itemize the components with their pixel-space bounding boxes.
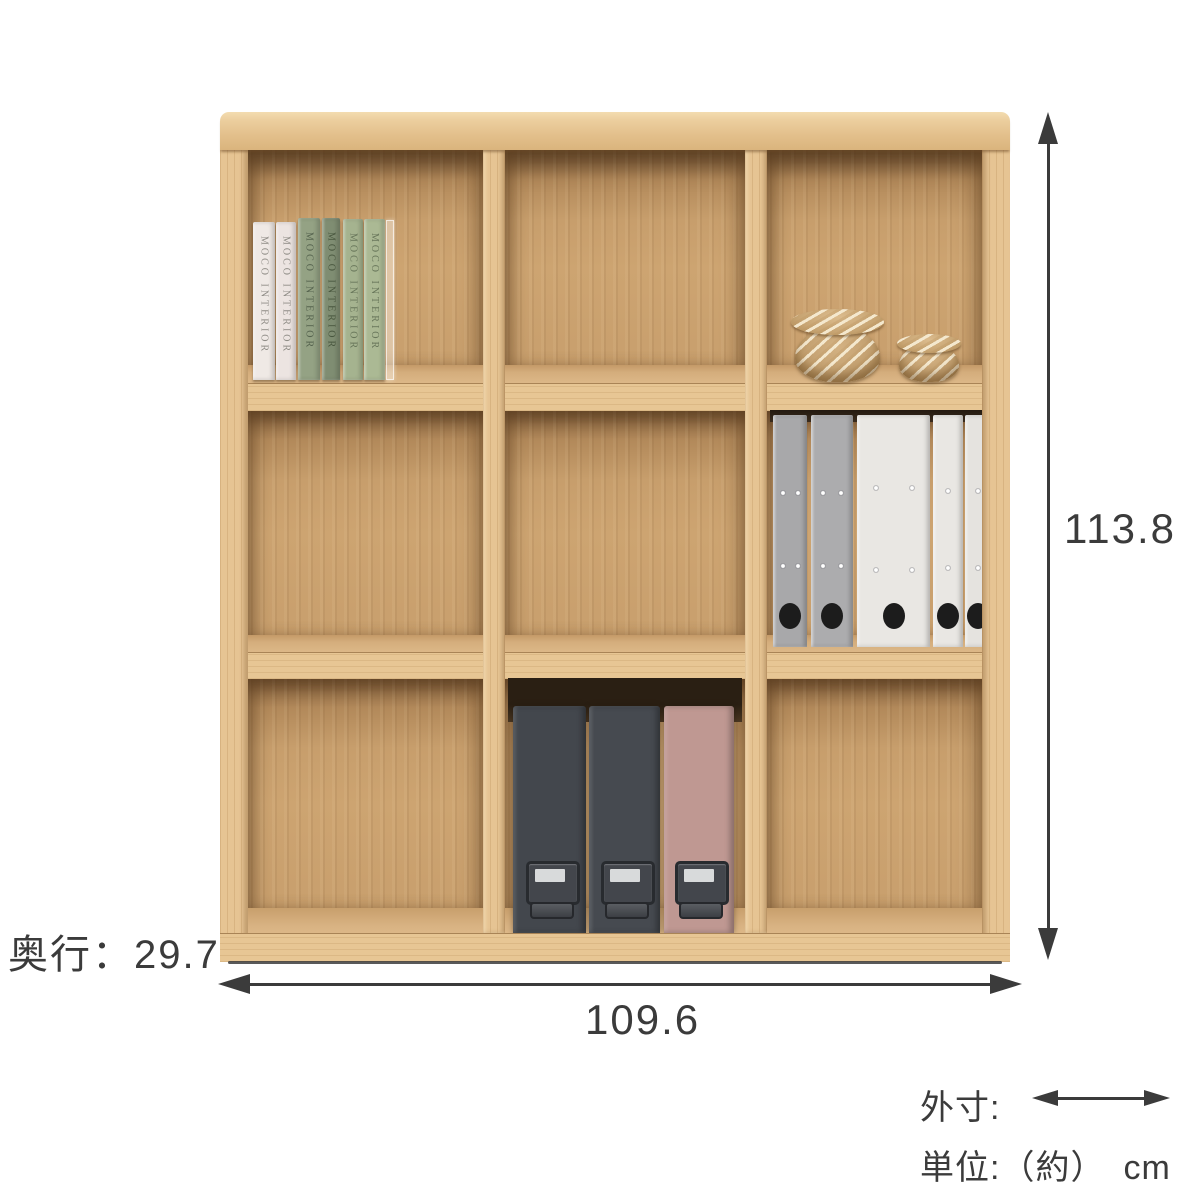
label-holder [675, 861, 729, 905]
height-dimension-label: 113.8 [1064, 505, 1176, 553]
binder-rivet [945, 565, 951, 571]
woven-basket-small-lid [897, 334, 961, 353]
width-dimension-label: 109.6 [585, 996, 700, 1044]
woven-basket-large-lid [791, 309, 884, 335]
binder-rivet [780, 490, 786, 496]
binder [811, 415, 853, 647]
binder-rivet [873, 485, 879, 491]
binder [773, 415, 807, 647]
label-holder [601, 861, 655, 905]
binder [857, 415, 930, 647]
double-arrow-icon [1032, 1088, 1170, 1108]
double-arrow-left-head [1032, 1090, 1058, 1106]
book-spine-text: MOCO INTERIOR [326, 232, 337, 380]
binder-rivet [820, 563, 826, 569]
shelf-cell-r3c1 [248, 678, 483, 908]
pull-handle [679, 902, 723, 919]
book-spine: MOCO INTERIOR [253, 222, 275, 380]
shelf-cell-r2c1 [248, 410, 483, 635]
book-spine-text: MOCO INTERIOR [304, 232, 315, 380]
cabinet-divider-2 [745, 150, 767, 933]
legend-unit-label: 単位:（約） cm [920, 1140, 1171, 1189]
arrow-up-icon [1038, 112, 1058, 144]
height-dimension-line [1047, 118, 1050, 954]
label-holder [526, 861, 580, 905]
cabinet-divider-1 [483, 150, 505, 933]
book-spine-text: MOCO INTERIOR [348, 233, 359, 380]
binder-rivet [795, 490, 801, 496]
cabinet-left-wall [220, 150, 248, 961]
cabinet-bottom-rail [220, 933, 1010, 962]
cabinet-right-wall [982, 150, 1010, 961]
book-spine: MOCO INTERIOR [298, 218, 320, 380]
book-spine-text: MOCO INTERIOR [259, 236, 270, 380]
book-spine-text: MOCO INTERIOR [369, 233, 380, 380]
file-box [664, 706, 734, 933]
cabinet-top-panel [220, 112, 1010, 150]
arrow-down-icon [1038, 928, 1058, 960]
double-arrow-line [1052, 1097, 1150, 1100]
binder-rivet [795, 563, 801, 569]
width-dimension-line [230, 983, 1010, 986]
book-spine: MOCO INTERIOR [276, 222, 296, 380]
label-card [610, 869, 640, 882]
binder [933, 415, 963, 647]
woven-basket-large [795, 327, 880, 382]
shelf-board-1-face [248, 383, 982, 411]
legend-outer-dim-label: 外寸: [920, 1080, 1000, 1129]
shelf-cell-r1c3 [767, 150, 982, 365]
book-spine: MOCO INTERIOR [343, 219, 363, 380]
file-box [513, 706, 586, 933]
binder-rivet [975, 565, 981, 571]
binder-rivet [780, 563, 786, 569]
pull-handle [530, 902, 574, 919]
shelf-board-2-face [248, 652, 982, 679]
arrow-right-icon [990, 974, 1022, 994]
book-spine: MOCO INTERIOR [364, 219, 385, 380]
binder-rivet [873, 567, 879, 573]
acrylic-bookend [386, 220, 394, 380]
binder-rivet [838, 490, 844, 496]
label-card [684, 869, 714, 882]
depth-dimension-label: 奥行：29.7 [8, 922, 220, 980]
binder-rivet [820, 490, 826, 496]
shelf-cell-r2c2 [505, 410, 745, 635]
bookshelf: MOCO INTERIOR MOCO INTERIOR MOCO INTERIO… [220, 112, 1010, 965]
pull-handle [605, 902, 649, 919]
product-dimension-diagram: MOCO INTERIOR MOCO INTERIOR MOCO INTERIO… [0, 0, 1200, 1200]
binder-rivet [945, 488, 951, 494]
shelf-cell-r1c2 [505, 150, 745, 365]
shelf-cell-r3c3 [767, 678, 982, 908]
arrow-left-icon [218, 974, 250, 994]
binder-rivet [838, 563, 844, 569]
binder-rivet [975, 488, 981, 494]
book-spine: MOCO INTERIOR [322, 218, 340, 380]
binder-rivet [909, 485, 915, 491]
file-box [589, 706, 660, 933]
double-arrow-right-head [1144, 1090, 1170, 1106]
book-spine-text: MOCO INTERIOR [281, 236, 292, 380]
cabinet-base-shadow [228, 961, 1002, 964]
binder-rivet [909, 567, 915, 573]
label-card [535, 869, 565, 882]
